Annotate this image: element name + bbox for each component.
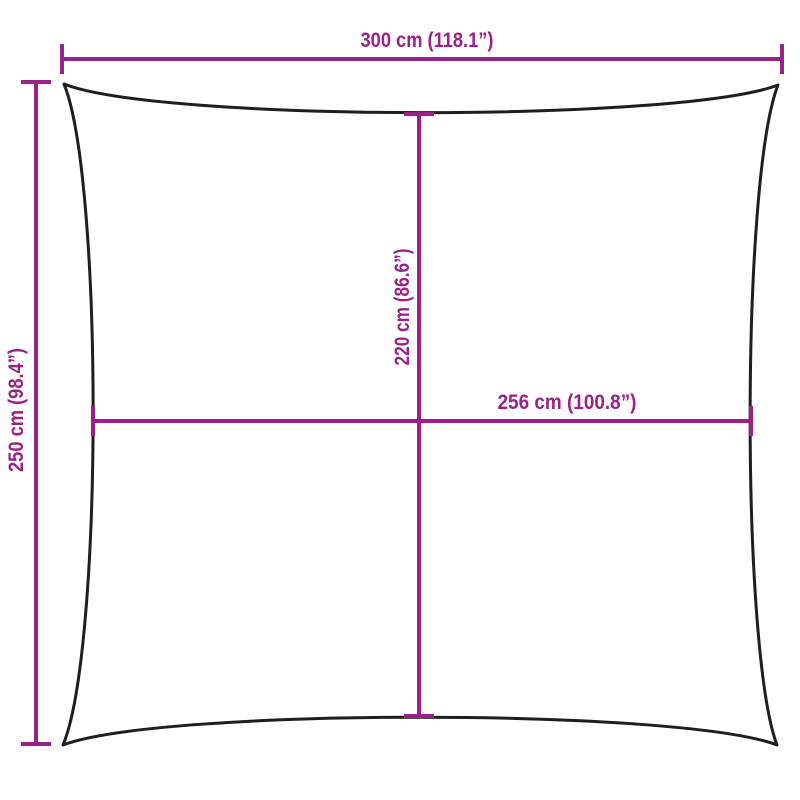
top-width-dimension: 300 cm (118.1”) [62,29,782,74]
product-dimension-diagram: 300 cm (118.1”) 250 cm (98.4”) 220 cm (8… [0,0,800,800]
center-height-dimension: 220 cm (86.6”) [391,114,434,716]
center-width-dimension-label: 256 cm (100.8”) [498,391,637,414]
left-height-dimension: 250 cm (98.4”) [5,82,51,744]
diagram-canvas: 300 cm (118.1”) 250 cm (98.4”) 220 cm (8… [0,0,800,800]
center-height-dimension-label: 220 cm (86.6”) [391,249,414,366]
center-width-dimension: 256 cm (100.8”) [93,391,751,436]
left-height-dimension-label: 250 cm (98.4”) [5,348,28,472]
top-width-dimension-label: 300 cm (118.1”) [361,29,494,52]
